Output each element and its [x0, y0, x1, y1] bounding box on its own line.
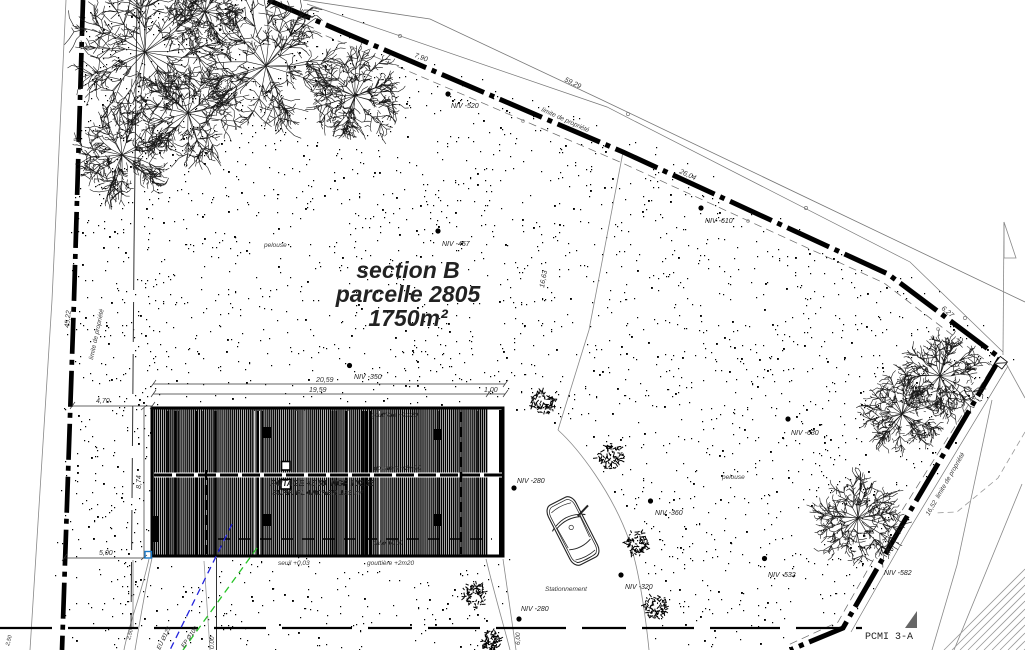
- svg-text:pelouse: pelouse: [263, 242, 287, 249]
- svg-text:NIV -360: NIV -360: [655, 510, 683, 517]
- svg-text:1750m²: 1750m²: [368, 305, 449, 331]
- svg-text:NIV -610: NIV -610: [705, 218, 733, 225]
- svg-text:4,70: 4,70: [96, 398, 110, 405]
- svg-text:NIV -520: NIV -520: [451, 103, 479, 110]
- svg-text:NIV -630: NIV -630: [791, 430, 819, 437]
- svg-text:NIV -320: NIV -320: [625, 584, 653, 591]
- svg-text:SURF. PLANCHER 139 m²: SURF. PLANCHER 139 m²: [272, 488, 364, 497]
- svg-text:gouttière +2m20: gouttière +2m20: [374, 465, 422, 472]
- svg-text:parcelle 2805: parcelle 2805: [335, 281, 482, 307]
- svg-text:5,00: 5,00: [99, 550, 113, 557]
- svg-text:NIV -457: NIV -457: [442, 241, 471, 248]
- svg-text:20,59: 20,59: [315, 377, 334, 384]
- svg-text:FAITAGE +5,60 NGF 102,35: FAITAGE +5,60 NGF 102,35: [270, 479, 375, 488]
- svg-text:section B: section B: [356, 257, 460, 283]
- svg-text:NIV -280: NIV -280: [521, 606, 549, 613]
- svg-text:1,00: 1,00: [484, 387, 498, 394]
- svg-text:Stationnement: Stationnement: [545, 586, 588, 593]
- svg-text:NIV -280: NIV -280: [517, 478, 545, 485]
- svg-text:6,00: 6,00: [515, 632, 522, 645]
- svg-text:NIV -582: NIV -582: [884, 570, 912, 577]
- svg-text:gouttière +2m20: gouttière +2m20: [367, 560, 415, 567]
- svg-text:dalle +0,00: dalle +0,00: [373, 541, 403, 547]
- svg-text:0.00: 0.00: [209, 636, 216, 649]
- svg-text:19,59: 19,59: [309, 387, 327, 394]
- svg-text:PCMI 3-A: PCMI 3-A: [865, 632, 913, 643]
- svg-text:gouttière +2m20: gouttière +2m20: [371, 412, 419, 419]
- svg-text:NIV -350: NIV -350: [354, 374, 382, 381]
- svg-text:pelouse: pelouse: [721, 474, 745, 481]
- svg-text:seuil +0,03: seuil +0,03: [278, 560, 310, 567]
- svg-text:NIV -532: NIV -532: [768, 572, 796, 579]
- svg-text:8,74: 8,74: [136, 475, 143, 489]
